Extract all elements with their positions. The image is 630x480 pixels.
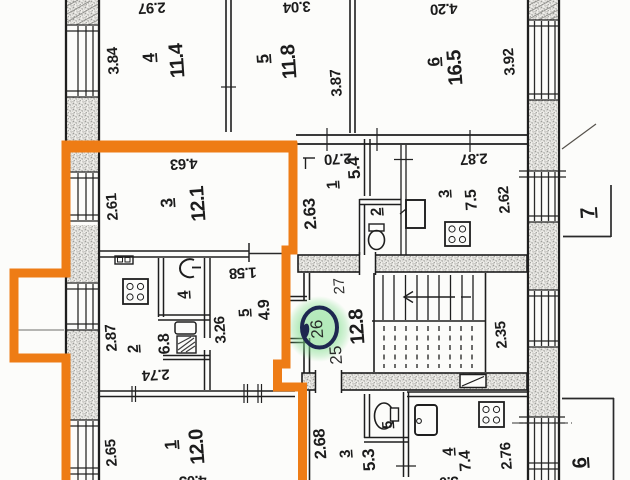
svg-text:5.4: 5.4 [344,155,365,179]
svg-text:7.4: 7.4 [456,449,474,471]
svg-text:3.92: 3.92 [500,48,519,76]
svg-text:6.8: 6.8 [155,332,173,354]
svg-text:7: 7 [577,207,600,220]
svg-text:2: 2 [125,344,143,353]
svg-text:2.62: 2.62 [495,186,514,214]
svg-text:4.03: 4.03 [179,471,207,480]
svg-text:2.61: 2.61 [103,193,122,221]
svg-text:26: 26 [307,319,327,339]
svg-text:4.20: 4.20 [430,0,458,18]
svg-text:2.35: 2.35 [492,321,511,349]
svg-text:2.68: 2.68 [310,428,330,460]
svg-text:2.76: 2.76 [497,442,516,470]
svg-text:11.8: 11.8 [277,44,301,80]
svg-text:11.4: 11.4 [165,42,189,79]
svg-text:3: 3 [337,449,355,458]
svg-text:6: 6 [569,457,592,470]
svg-text:2.63: 2.63 [299,198,320,230]
svg-text:3.0: 3.0 [439,473,459,480]
svg-text:1: 1 [161,440,181,450]
svg-text:1: 1 [324,180,342,189]
svg-text:2.65: 2.65 [102,439,121,467]
svg-text:5.3: 5.3 [359,448,380,471]
svg-text:3: 3 [436,189,454,198]
svg-text:25: 25 [326,345,346,365]
svg-text:3.04: 3.04 [282,0,311,16]
svg-text:3.26: 3.26 [211,316,230,344]
svg-text:12.1: 12.1 [186,185,210,222]
svg-text:3.84: 3.84 [104,46,123,75]
svg-text:16.5: 16.5 [443,49,467,86]
svg-text:2.74: 2.74 [141,365,170,383]
svg-text:12.0: 12.0 [185,428,209,465]
svg-text:2.97: 2.97 [138,0,166,17]
svg-text:2.87: 2.87 [102,324,121,352]
svg-text:12.8: 12.8 [345,308,369,345]
svg-text:1.58: 1.58 [229,263,257,281]
svg-text:4.9: 4.9 [255,298,273,320]
svg-text:27: 27 [330,277,348,295]
svg-text:3: 3 [157,198,177,208]
svg-text:6: 6 [424,57,444,67]
svg-text:2: 2 [368,207,386,216]
svg-text:7.5: 7.5 [462,188,480,210]
svg-text:5: 5 [236,308,254,317]
svg-text:5: 5 [253,54,273,64]
svg-text:3.87: 3.87 [327,69,346,97]
svg-text:4.63: 4.63 [170,154,198,172]
svg-text:2.87: 2.87 [460,149,488,167]
